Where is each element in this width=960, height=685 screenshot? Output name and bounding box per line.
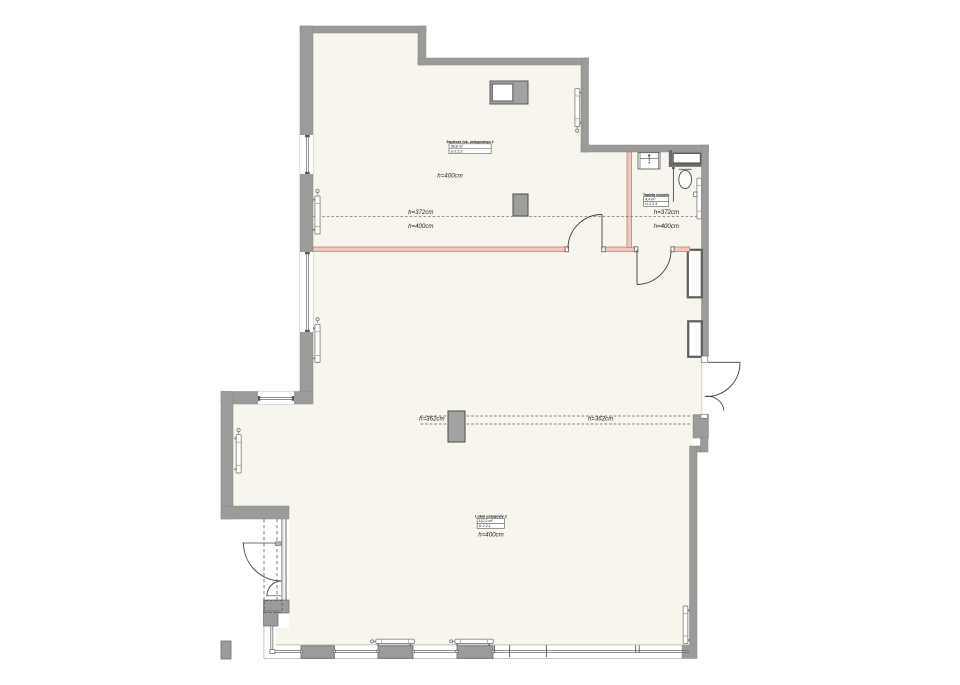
svg-text:38,8 m²: 38,8 m²	[451, 145, 464, 149]
svg-text:h=372cm: h=372cm	[408, 209, 433, 216]
svg-text:h=362cm: h=362cm	[588, 416, 613, 423]
svg-text:U-2.2.2: U-2.2.2	[451, 149, 463, 153]
svg-text:h=400cm: h=400cm	[654, 223, 679, 230]
svg-text:h=400cm: h=400cm	[478, 532, 503, 539]
svg-text:112,2 m²: 112,2 m²	[479, 519, 494, 523]
svg-text:h=400cm: h=400cm	[437, 173, 462, 180]
svg-text:U-2.2.3: U-2.2.3	[645, 202, 657, 206]
svg-text:h=400cm: h=400cm	[408, 223, 433, 230]
svg-text:4,4 m²: 4,4 m²	[645, 197, 656, 201]
svg-text:U-2.2.1: U-2.2.1	[479, 524, 491, 528]
svg-text:h=362cm: h=362cm	[419, 416, 444, 423]
svg-text:h=372cm: h=372cm	[654, 209, 679, 216]
